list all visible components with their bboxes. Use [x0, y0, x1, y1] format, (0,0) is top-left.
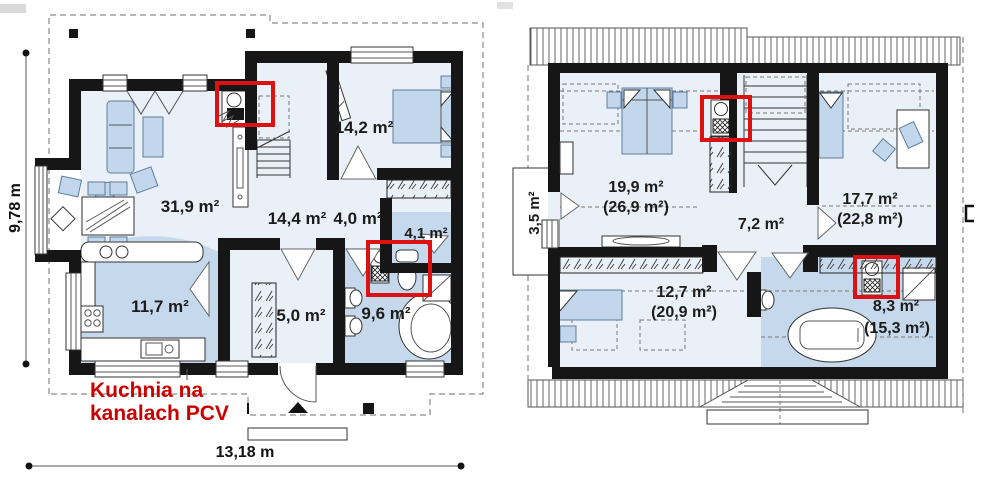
room-label-bedroom2: 17,7 m² — [842, 191, 897, 208]
room-label-bedroom1-floor: (26,9 m²) — [603, 199, 669, 216]
wardrobe — [387, 180, 451, 198]
room-label-bathroom-up: 8,3 m² — [873, 298, 919, 315]
wardrobe-up — [710, 137, 731, 192]
wardrobe-up — [820, 257, 936, 273]
dimension-height: 9,78 m — [7, 50, 30, 368]
annotation-line1: Kuchnia na — [90, 379, 204, 402]
room-label-bedroom1: 19,9 m² — [608, 179, 663, 196]
terrace-post — [69, 29, 78, 38]
terrace-post — [246, 29, 255, 38]
room-label-vestibule: 5,0 m² — [276, 306, 325, 325]
room-label-bedroom3: 12,7 m² — [656, 284, 711, 301]
toilet-tank — [396, 250, 418, 262]
dimension-width: 13,18 m — [26, 444, 465, 470]
annotation-line2: kanalach PCV — [90, 402, 229, 425]
room-label-hall: 14,4 m² — [268, 209, 327, 228]
chimney-stack — [711, 100, 731, 136]
room-label-bedroom: 14,2 m² — [335, 118, 394, 137]
room-label-bedroom2-floor: (22,8 m²) — [837, 211, 903, 228]
room-label-bathroom: 9,6 m² — [361, 304, 410, 323]
room-label-wc: 4,1 m² — [404, 225, 447, 242]
stove — [81, 306, 103, 332]
porch — [248, 402, 374, 440]
floor-plans-drawing: 9,78 m 13,18 m 31,9 m² 14,2 m² 14,4 m² 4… — [0, 0, 1000, 492]
dim-height-label: 9,78 m — [7, 183, 24, 233]
room-label-living: 31,9 m² — [161, 197, 220, 216]
section-mark — [966, 206, 974, 221]
room-label-kitchen: 11,7 m² — [131, 297, 189, 316]
room-label-bathroom-up-floor: (15,3 m²) — [864, 320, 930, 337]
room-label-bedroom3-floor: (20,9 m²) — [651, 304, 717, 321]
scan-artifact — [0, 4, 26, 13]
scan-artifact-2 — [497, 2, 513, 9]
room-label-corridor: 4,0 m² — [333, 209, 382, 228]
dim-width-label: 13,18 m — [216, 444, 275, 461]
balcony-label: 3,5 m² — [526, 191, 543, 234]
upper-floor-plan: 3,5 m² — [513, 28, 974, 424]
wardrobe-up — [560, 257, 703, 273]
room-label-landing: 7,2 m² — [738, 216, 784, 233]
boiler-niche — [219, 91, 248, 127]
wardrobe — [252, 283, 276, 357]
floor-plans-canvas: 9,78 m 13,18 m 31,9 m² 14,2 m² 14,4 m² 4… — [0, 0, 1000, 492]
ground-floor-plan: 9,78 m 13,18 m 31,9 m² 14,2 m² 14,4 m² 4… — [7, 15, 483, 470]
